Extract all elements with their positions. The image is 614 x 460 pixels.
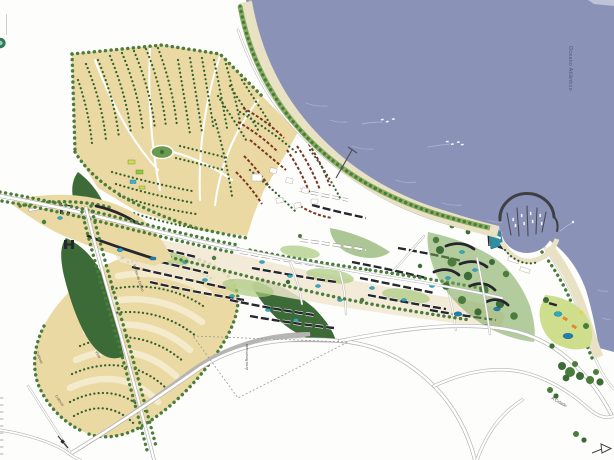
label-area-reservada: Área Reservada xyxy=(245,344,249,370)
label-road-to-city: A Cidade xyxy=(551,396,569,409)
resort-master-plan: Área Reservada Oceano Atlânti xyxy=(0,0,614,460)
label-ocean: Oceano Atlântico xyxy=(567,46,573,91)
east-exit-arrow-icon xyxy=(592,444,611,453)
edge-ticks xyxy=(0,398,4,454)
